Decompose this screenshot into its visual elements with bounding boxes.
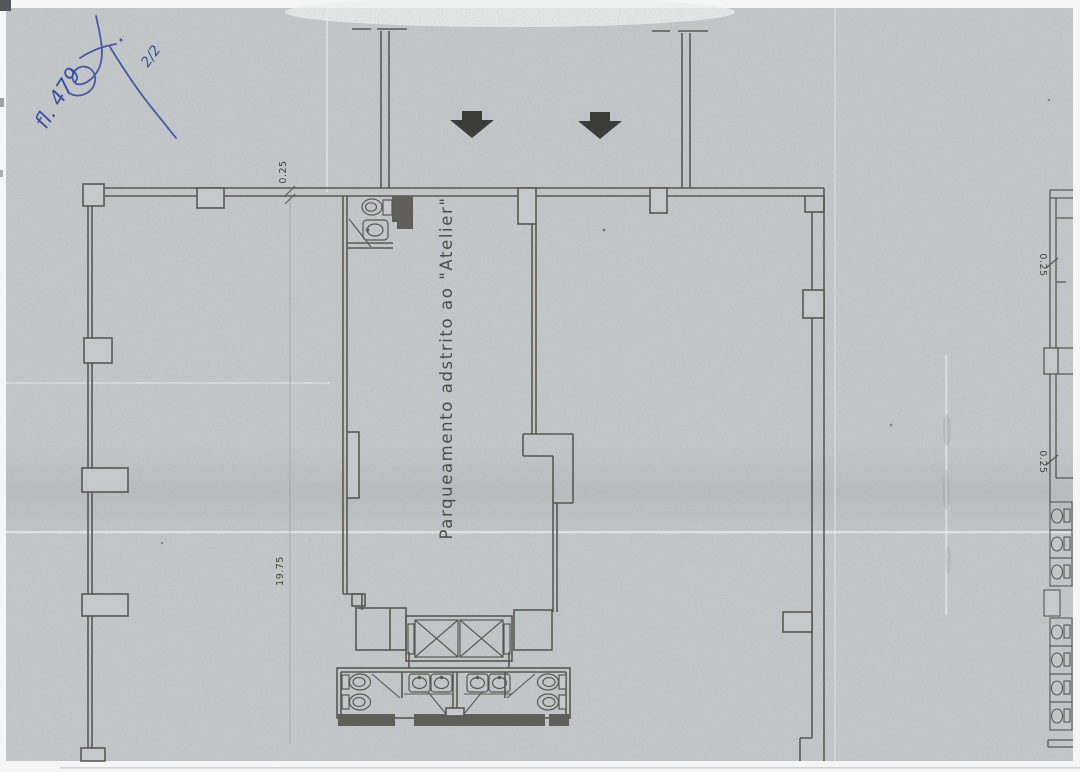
thick-bottom-wall — [549, 714, 569, 726]
column — [1044, 348, 1058, 374]
thick-wall — [392, 196, 413, 222]
column — [84, 338, 112, 363]
floor-plan-drawing: Parqueamento adstrito ao "Atelier" 0.25 … — [0, 0, 1080, 772]
paper-background — [0, 0, 1080, 772]
scan-corner-artifact — [0, 0, 11, 11]
paper-speck — [890, 424, 893, 427]
center-wall-base — [446, 708, 464, 716]
column — [803, 290, 824, 318]
column — [1044, 590, 1060, 616]
column — [81, 748, 105, 761]
parking-area-label: Parqueamento adstrito ao "Atelier" — [437, 196, 456, 539]
wall-pilaster — [347, 432, 359, 498]
column — [650, 188, 667, 213]
page-bottom-shadow — [60, 767, 1080, 769]
column — [82, 594, 128, 616]
vertical-crease-top — [326, 8, 328, 192]
crease-smudge — [945, 546, 951, 574]
paper-speck — [603, 229, 606, 232]
column — [83, 184, 104, 206]
column — [197, 188, 224, 208]
horizontal-fold-crease — [6, 531, 1073, 533]
dim-depth-left: 19.75 — [275, 556, 286, 586]
paper-speck — [1048, 99, 1050, 101]
scan-edge-artifact — [0, 98, 4, 107]
crease-smudge — [943, 470, 950, 510]
paper-speck — [161, 542, 163, 544]
column — [82, 468, 128, 492]
dim-wall-top: 0.25 — [278, 160, 289, 183]
column — [783, 612, 812, 632]
scanned-floor-plan-page: Parqueamento adstrito ao "Atelier" 0.25 … — [0, 0, 1080, 772]
thick-bottom-wall — [338, 714, 395, 726]
scan-edge-artifact — [0, 170, 3, 177]
thick-wall-step — [397, 222, 413, 229]
dim-wall-right-lower: 0.25 — [1037, 450, 1048, 473]
vertical-fold-crease — [834, 8, 836, 761]
dim-wall-right-upper: 0.25 — [1037, 253, 1048, 276]
paper-grain — [6, 8, 1073, 761]
column — [518, 188, 536, 224]
horizontal-crease-left — [6, 382, 330, 384]
thick-bottom-wall — [414, 714, 545, 726]
crease-smudge — [943, 414, 951, 446]
